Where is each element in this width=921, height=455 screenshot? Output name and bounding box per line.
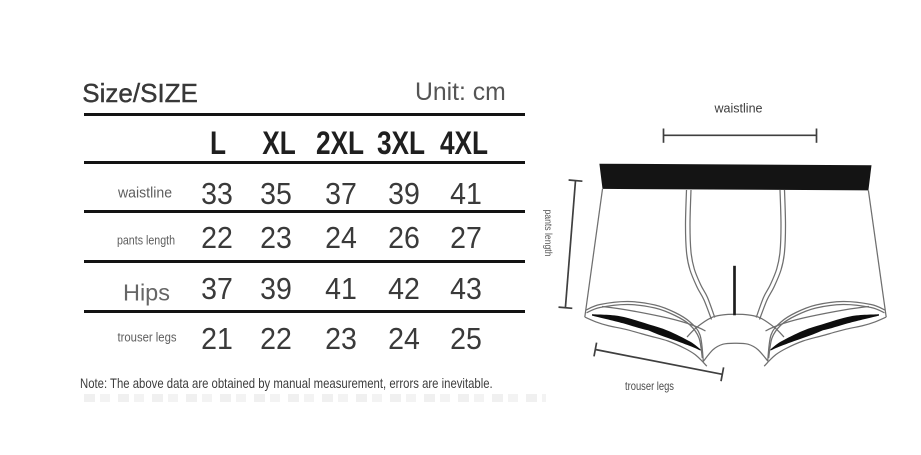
svg-text:trouser legs: trouser legs bbox=[625, 379, 674, 393]
svg-text:waistline: waistline bbox=[714, 102, 763, 116]
svg-text:pants length: pants length bbox=[542, 210, 553, 257]
